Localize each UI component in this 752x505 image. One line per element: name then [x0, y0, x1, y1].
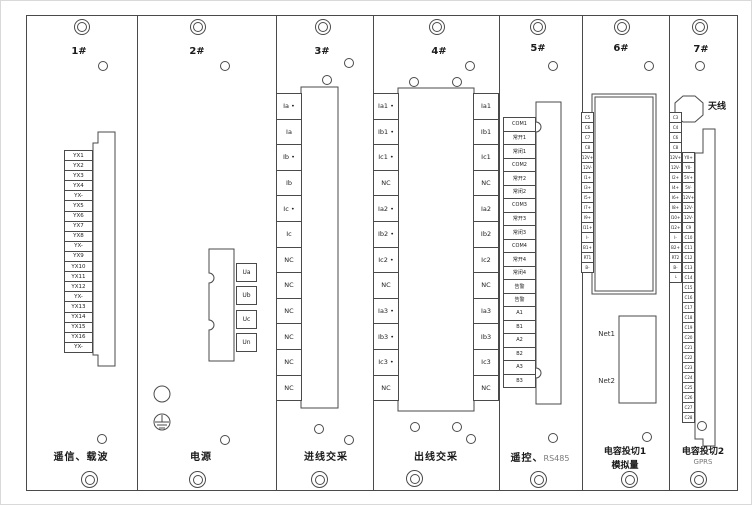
terminal-cell: 常开2	[503, 171, 536, 186]
net1-label: Net1	[598, 330, 615, 338]
terminal-cell: Ic1	[473, 144, 499, 171]
module6-net-block	[619, 316, 656, 403]
terminal-cell: Ia2 •	[373, 195, 399, 222]
led-hole	[322, 75, 332, 85]
terminal-cell: 告警	[503, 293, 536, 308]
terminal-cell: NC	[276, 247, 302, 274]
terminal-cell: A1	[503, 306, 536, 321]
terminal-cell: A3	[503, 360, 536, 375]
terminal-cell: 常开1	[503, 131, 536, 146]
led-hole	[314, 424, 324, 434]
led-hole	[409, 77, 419, 87]
terminal-strip-voltage: UaUbUcUn	[236, 263, 257, 357]
terminal-cell: Ic1 •	[373, 144, 399, 171]
terminal-cell: 常闭1	[503, 144, 536, 159]
screw-hole-top	[530, 19, 546, 35]
terminal-cell: A2	[503, 333, 536, 348]
terminal-cell: COM4	[503, 239, 536, 254]
screw-hole-bottom	[530, 471, 547, 488]
terminal-cell: Ia1 •	[373, 93, 399, 120]
terminal-cell: Ia1	[473, 93, 499, 120]
terminal-cell: C28	[682, 412, 695, 423]
module7-connector-body	[695, 129, 715, 446]
terminal-cell: Ia2	[473, 195, 499, 222]
screw-hole-bottom	[311, 471, 328, 488]
terminal-strip-col2: Y0+Y0-5V+5V-12V+12V-12V-C9C10C11C12C13C1…	[682, 153, 695, 423]
terminal-strip-right: Ia1Ib1Ic1NCIa2Ib2Ic2NCIa3Ib3Ic3NC	[473, 94, 499, 401]
screw-hole-top	[429, 19, 445, 35]
terminal-cell: Ib1	[473, 119, 499, 146]
led-hole	[220, 435, 230, 445]
terminal-cell: NC	[473, 272, 499, 299]
terminal-cell: Ib	[276, 170, 302, 197]
terminal-strip-current: Ia •IaIb •IbIc •IcNCNCNCNCNCNC	[276, 94, 302, 401]
terminal-cell: 常闭4	[503, 266, 536, 281]
screw-hole-bottom	[690, 471, 707, 488]
led-hole	[548, 433, 558, 443]
module-number: 1#	[71, 46, 86, 57]
terminal-cell: Ia3 •	[373, 298, 399, 325]
terminal-cell: Ib2	[473, 221, 499, 248]
module-label: 进线交采	[304, 448, 348, 463]
module-label-line2: GPRS	[694, 458, 713, 466]
screw-hole-top	[190, 19, 206, 35]
terminal-cell: NC	[276, 323, 302, 350]
led-hole	[98, 61, 108, 71]
module-label: 电源	[190, 448, 212, 463]
ground-icon	[154, 414, 170, 430]
terminal-cell: Ia	[276, 119, 302, 146]
terminal-cell: 告警	[503, 279, 536, 294]
terminal-strip-relay: COM1常开1常闭1COM2常开2常闭2COM3常开3常闭3COM4常开4常闭4…	[503, 118, 536, 388]
terminal-cell: Ic2	[473, 247, 499, 274]
screw-hole-bottom	[621, 471, 638, 488]
module-label-line1: 电容投切1	[604, 444, 646, 457]
terminal-cell: Ia •	[276, 93, 302, 120]
terminal-cell: B1	[503, 320, 536, 335]
terminal-cell: B-	[581, 262, 594, 273]
terminal-strip-analog: C5C6C7C812V+12V-I1+I3+I5+I7+I9+I11+I-B1+…	[581, 113, 594, 273]
terminal-cell: └	[669, 272, 682, 283]
screw-hole-top	[692, 19, 708, 35]
terminal-strip-left: Ia1 •Ib1 •Ic1 •NCIa2 •Ib2 •Ic2 •NCIa3 •I…	[373, 94, 399, 401]
terminal-cell: Ib •	[276, 144, 302, 171]
led-hole	[465, 61, 475, 71]
module-label-line1: 电容投切2	[682, 444, 724, 457]
module-label: 出线交采	[414, 448, 458, 463]
module2-hole	[154, 386, 170, 402]
terminal-cell: Ib3 •	[373, 323, 399, 350]
terminal-cell: NC	[373, 375, 399, 402]
module5-connector-body	[536, 102, 561, 404]
led-hole	[97, 434, 107, 444]
led-hole	[642, 432, 652, 442]
screw-hole-bottom	[189, 471, 206, 488]
led-hole	[344, 435, 354, 445]
terminal-cell: YX-	[64, 342, 93, 353]
screw-hole-top	[614, 19, 630, 35]
terminal-cell: Ic	[276, 221, 302, 248]
terminal-cell: NC	[473, 170, 499, 197]
led-hole	[644, 61, 654, 71]
terminal-cell: 常开4	[503, 252, 536, 267]
module-number: 4#	[431, 46, 446, 57]
terminal-cell: NC	[276, 272, 302, 299]
module-number: 6#	[613, 43, 628, 54]
terminal-cell: 常闭3	[503, 225, 536, 240]
antenna-label: 天线	[708, 99, 726, 112]
terminal-cell: NC	[473, 375, 499, 402]
module6-top-block-inner	[595, 97, 653, 291]
terminal-cell: Ic3	[473, 349, 499, 376]
terminal-cell: Ua	[236, 263, 257, 282]
terminal-cell: NC	[276, 349, 302, 376]
terminal-cell: COM2	[503, 158, 536, 173]
net2-label: Net2	[598, 377, 615, 385]
terminal-cell: Ic2 •	[373, 247, 399, 274]
led-hole	[695, 61, 705, 71]
led-hole	[410, 422, 420, 432]
module3-connector-body	[301, 87, 338, 408]
terminal-cell: Ib3	[473, 323, 499, 350]
module-label-cn: 遥控、	[511, 453, 544, 464]
terminal-cell: Ia3	[473, 298, 499, 325]
module-number: 7#	[693, 44, 708, 55]
module4-connector-body	[398, 88, 474, 411]
terminal-cell: Ub	[236, 286, 257, 305]
module-number: 2#	[189, 46, 204, 57]
terminal-cell: Ib1 •	[373, 119, 399, 146]
panel-drawing: 1# YX1YX2YX3YX4YX-YX5YX6YX7YX8YX-YX9YX10…	[0, 0, 752, 505]
terminal-cell: NC	[373, 272, 399, 299]
terminal-cell: COM3	[503, 198, 536, 213]
terminal-cell: Ic3 •	[373, 349, 399, 376]
terminal-cell: Uc	[236, 310, 257, 329]
terminal-cell: Un	[236, 333, 257, 352]
led-hole	[697, 421, 707, 431]
module-number: 3#	[314, 46, 329, 57]
module2-connector-body	[209, 249, 234, 361]
terminal-cell: NC	[373, 170, 399, 197]
screw-hole-top	[74, 19, 90, 35]
led-hole	[548, 61, 558, 71]
module1-connector-body	[93, 132, 115, 366]
module-label-line2: 模拟量	[611, 458, 638, 471]
terminal-cell: B2	[503, 347, 536, 362]
terminal-cell: Ib2 •	[373, 221, 399, 248]
terminal-strip-col1: C3C4C6C812V+12V-I2+I4+I6+I8+I10+I12+I-B2…	[669, 113, 682, 283]
terminal-cell: Ic •	[276, 195, 302, 222]
module-number: 5#	[530, 43, 545, 54]
screw-hole-bottom	[81, 471, 98, 488]
terminal-cell: NC	[276, 375, 302, 402]
led-hole	[452, 422, 462, 432]
led-hole	[344, 58, 354, 68]
module-label: 遥控、RS485	[511, 449, 570, 464]
terminal-cell: 常闭2	[503, 185, 536, 200]
screw-hole-top	[315, 19, 331, 35]
terminal-cell: 常开3	[503, 212, 536, 227]
terminal-cell: B3	[503, 374, 536, 389]
led-hole	[220, 61, 230, 71]
terminal-cell: NC	[276, 298, 302, 325]
terminal-cell: COM1	[503, 117, 536, 132]
screw-hole-bottom	[406, 470, 423, 487]
module-label-code: RS485	[544, 454, 570, 463]
led-hole	[452, 77, 462, 87]
led-hole	[466, 434, 476, 444]
terminal-strip-yx: YX1YX2YX3YX4YX-YX5YX6YX7YX8YX-YX9YX10YX1…	[64, 151, 93, 353]
module-label: 遥信、载波	[54, 448, 109, 463]
